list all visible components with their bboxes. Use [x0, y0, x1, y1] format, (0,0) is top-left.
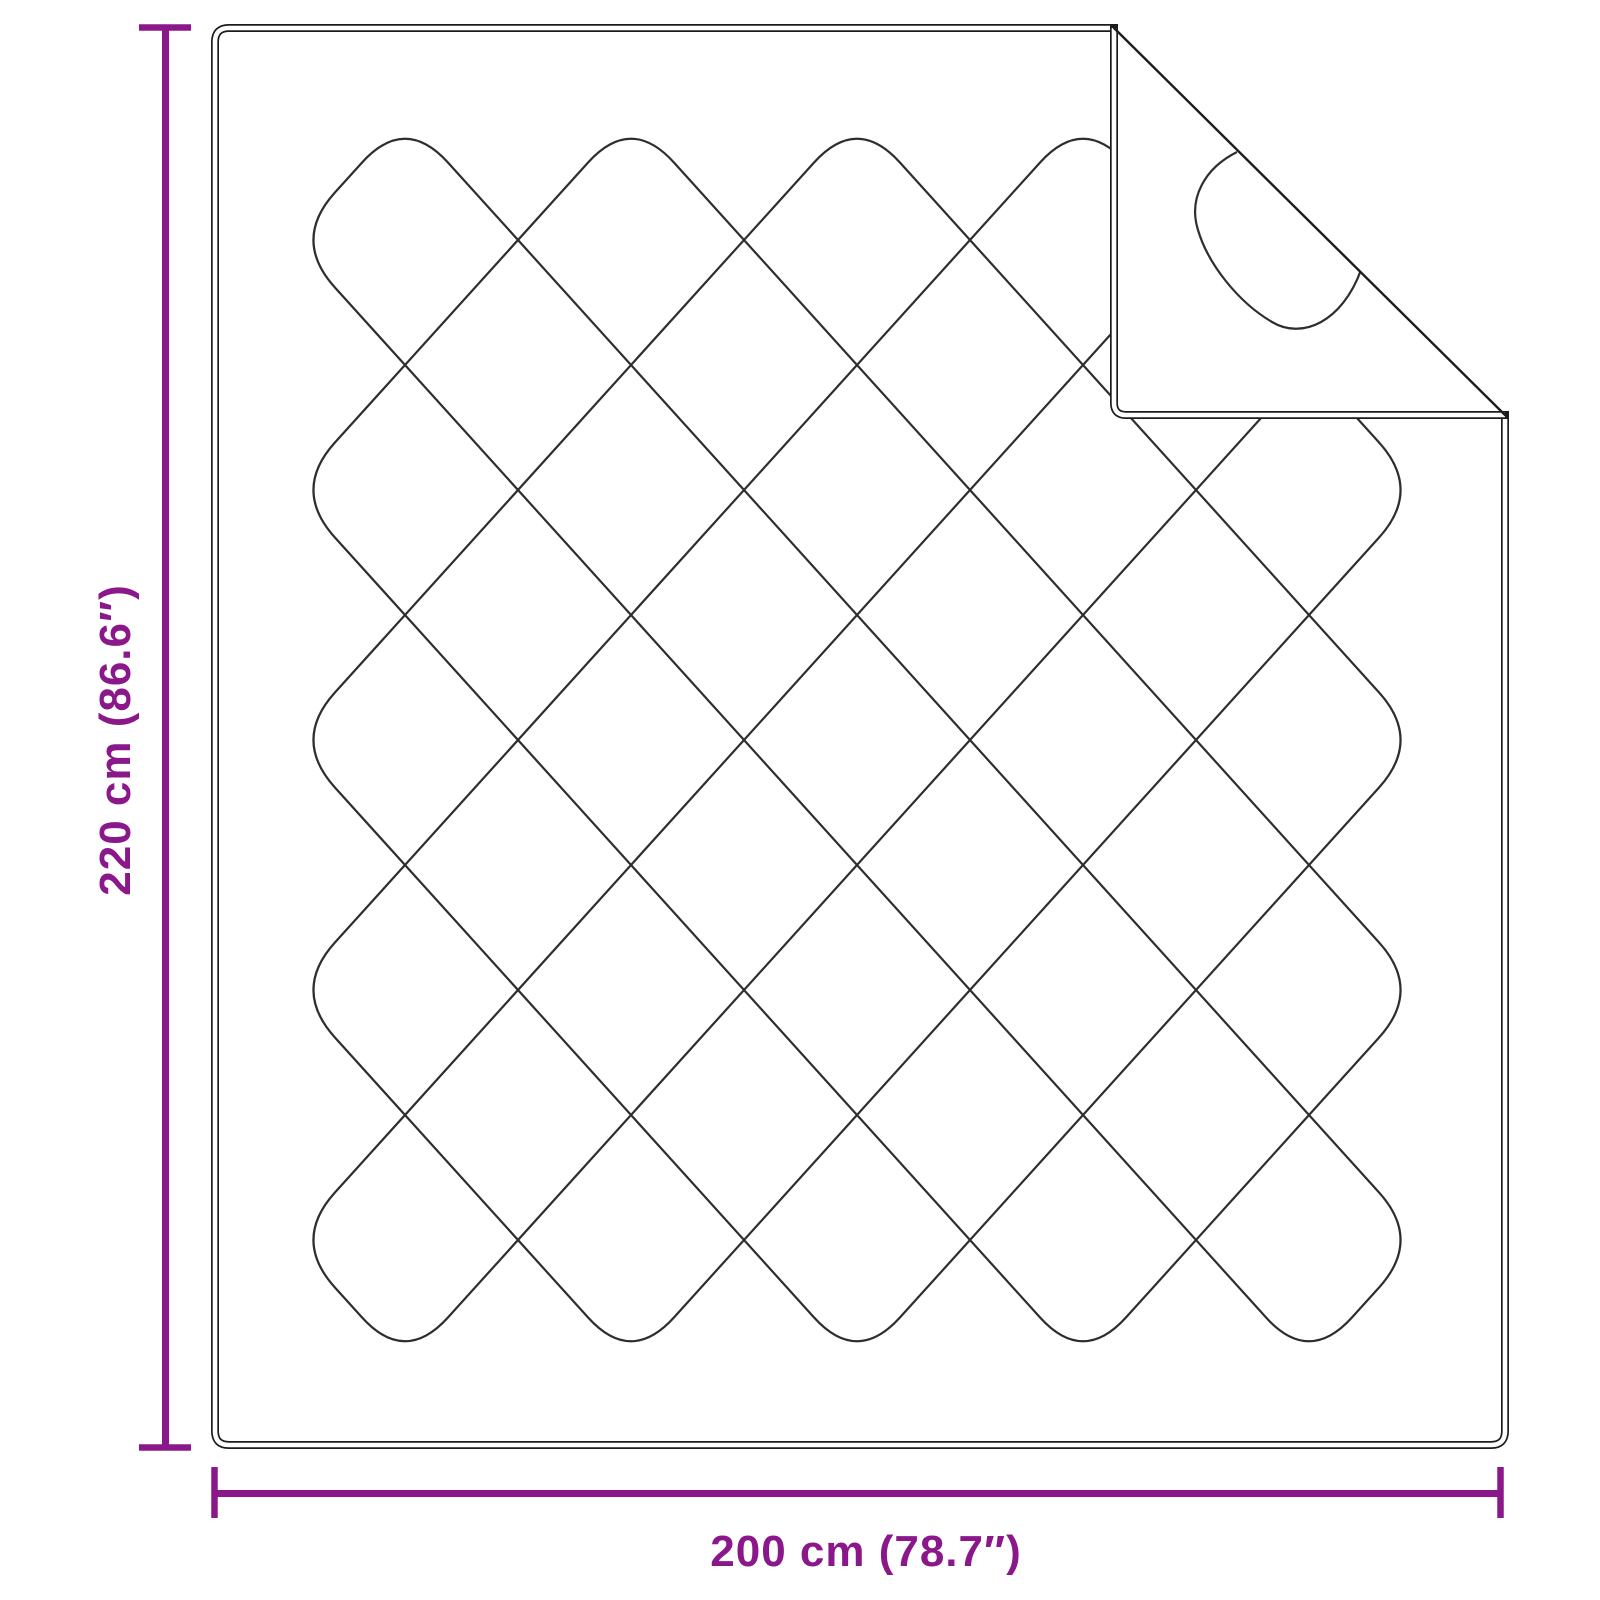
height-dimension-label: 220 cm (86.6″): [91, 584, 141, 895]
width-dimension-line: [215, 1467, 1501, 1518]
width-dimension-label: 200 cm (78.7″): [710, 1527, 1021, 1577]
blanket-diagram: [0, 0, 1600, 1600]
product-dimension-diagram: 220 cm (86.6″) 200 cm (78.7″): [0, 0, 1600, 1600]
height-dimension-line: [139, 28, 191, 1448]
